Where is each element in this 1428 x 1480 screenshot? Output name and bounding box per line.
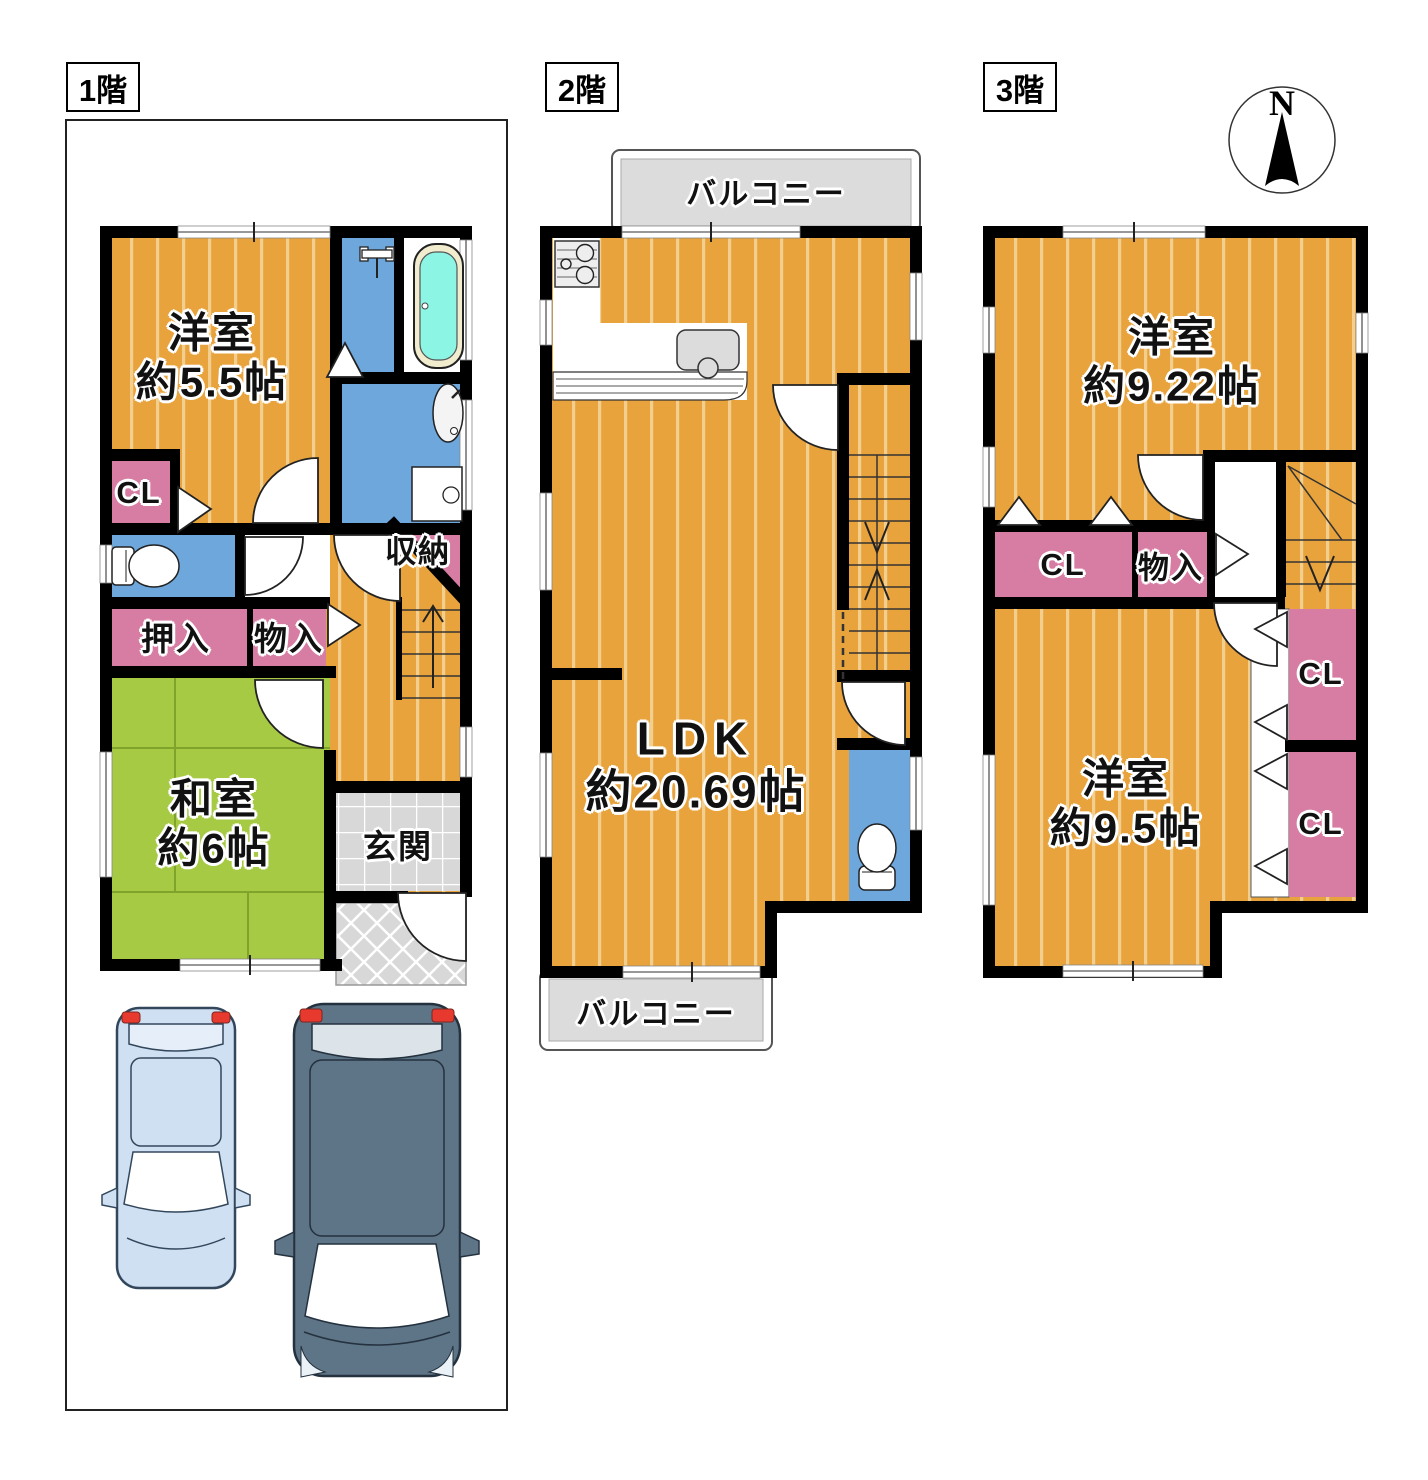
f1-closet-label: CL <box>116 475 161 511</box>
room-name: 洋室 <box>1083 313 1261 362</box>
f2-ldk-label: LDK 約20.69帖 <box>585 713 806 820</box>
f1-oshiire-label: 押入 <box>141 612 211 660</box>
room-size: 約5.5帖 <box>136 358 288 407</box>
floor2-tag: 2階 <box>545 62 619 112</box>
room-name: 洋室 <box>1050 755 1202 804</box>
floor3-tag: 3階 <box>983 62 1057 112</box>
car-compact <box>102 1008 250 1288</box>
floor1-tag: 1階 <box>66 62 140 112</box>
room-name: LDK <box>585 713 806 766</box>
f1-monoire-label: 物入 <box>254 612 324 660</box>
room-size: 約20.69帖 <box>585 766 806 819</box>
f3-western-room-b-label: 洋室 約9.5帖 <box>1050 755 1202 852</box>
f3-monoire-label: 物入 <box>1138 543 1204 588</box>
room-name: 和室 <box>157 775 270 824</box>
toilet-icon-2f <box>858 824 896 890</box>
f3-stair-hall <box>1215 462 1276 597</box>
f1-storage-label: 収納 <box>385 527 451 572</box>
room-size: 約9.5帖 <box>1050 804 1202 853</box>
floor-plan-page: 1階 2階 3階 洋室 約5.5帖 CL 収納 押入 物入 和室 約6帖 玄関 … <box>0 0 1428 1480</box>
compass-north-label: N <box>1269 82 1295 124</box>
f3-closet-row-label: CL <box>1040 547 1085 583</box>
room-size: 約9.22帖 <box>1083 362 1261 411</box>
f3-closet-upper-label: CL <box>1298 656 1343 692</box>
f2-balcony-top-label: バルコニー <box>686 169 845 213</box>
f3-western-room-a-label: 洋室 約9.22帖 <box>1083 313 1261 410</box>
f2-balcony-bottom-label: バルコニー <box>576 989 735 1033</box>
f3-closet-lower-label: CL <box>1298 806 1343 842</box>
f1-japanese-room-label: 和室 約6帖 <box>157 775 270 872</box>
floor2-plan <box>540 150 922 1050</box>
room-name: 洋室 <box>136 309 288 358</box>
room-size: 約6帖 <box>157 824 270 873</box>
f1-western-room-label: 洋室 約5.5帖 <box>136 309 288 406</box>
toilet-icon-1f <box>112 545 179 587</box>
f1-entrance-label: 玄関 <box>363 820 433 868</box>
kitchen-stove <box>555 241 599 287</box>
car-sedan <box>275 1004 479 1377</box>
